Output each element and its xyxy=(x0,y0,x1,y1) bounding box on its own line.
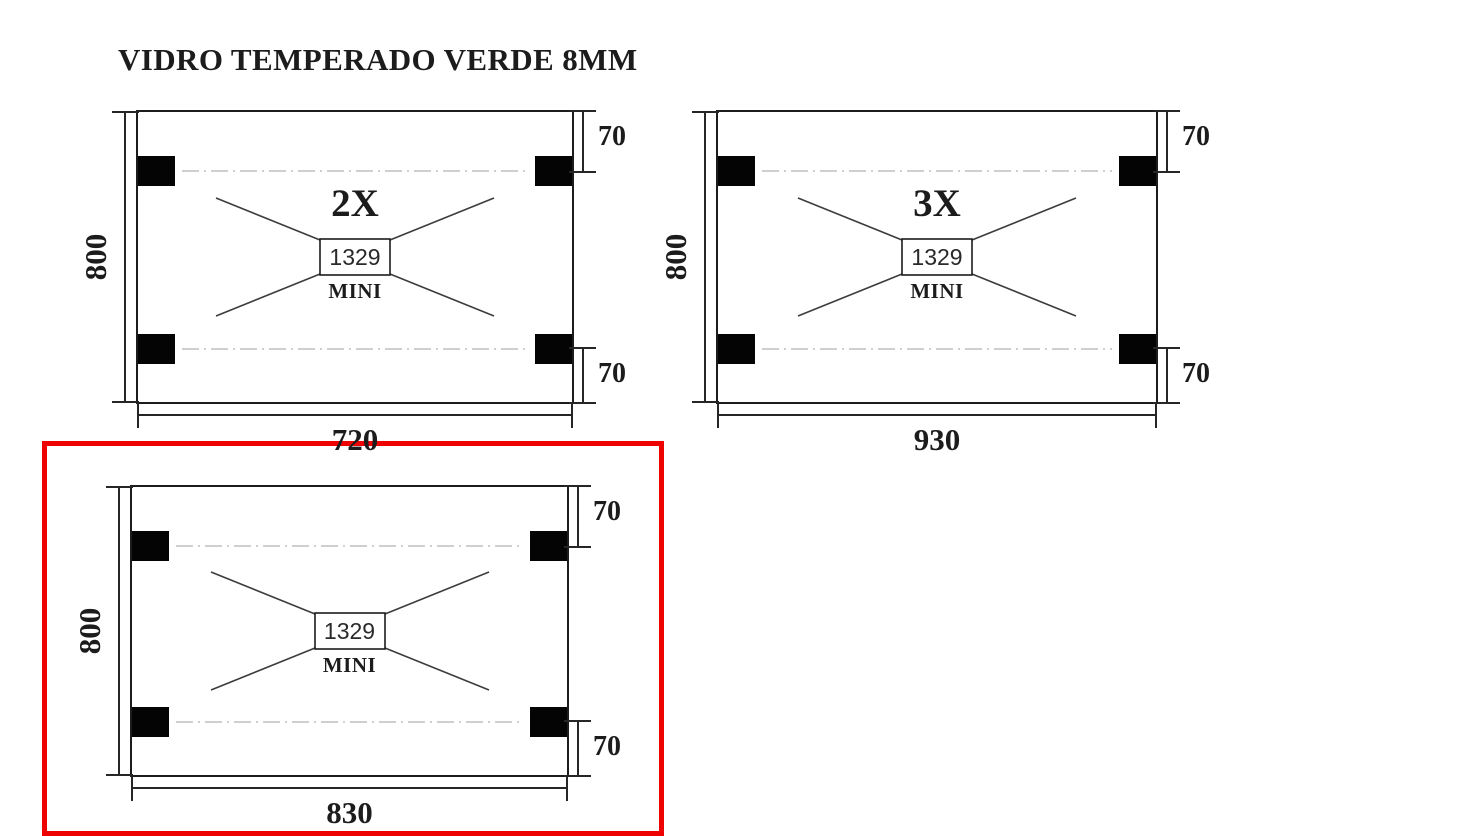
quantity-label: 2X xyxy=(200,184,510,223)
glass-panel-720x800: 2X 1329 MINI 800 720 70 70 xyxy=(136,110,574,404)
mounting-pad-icon xyxy=(1119,156,1156,186)
hole-offset-bottom-value: 70 xyxy=(1182,358,1210,390)
mounting-pad-icon xyxy=(132,531,169,561)
hole-offset-dimension-top: 70 xyxy=(577,486,579,547)
height-dimension-line xyxy=(118,486,120,776)
hole-offset-top-value: 70 xyxy=(598,121,626,153)
hole-offset-top-value: 70 xyxy=(1182,121,1210,153)
glass-panel-930x800: 3X 1329 MINI 800 930 70 70 xyxy=(716,110,1158,404)
hardware-series-label: MINI xyxy=(200,279,510,304)
mounting-pad-icon xyxy=(530,531,567,561)
height-dimension-line xyxy=(704,111,706,403)
center-hardware-mark: 2X 1329 MINI xyxy=(200,182,510,332)
center-hardware-mark: 3X 1329 MINI xyxy=(782,182,1092,332)
mounting-pad-icon xyxy=(1119,334,1156,364)
centerline-bottom xyxy=(762,348,1112,350)
hole-offset-top-value: 70 xyxy=(593,496,621,528)
centerline-bottom xyxy=(176,721,523,723)
height-dimension-line xyxy=(124,111,126,403)
mounting-pad-icon xyxy=(718,334,755,364)
hardware-model-label: 1329 xyxy=(320,239,390,275)
hole-offset-dimension-top: 70 xyxy=(582,111,584,172)
mounting-pad-icon xyxy=(535,334,572,364)
mounting-pad-icon xyxy=(530,707,567,737)
mounting-pad-icon xyxy=(535,156,572,186)
width-dimension-line xyxy=(131,787,568,789)
centerline-top xyxy=(182,170,528,172)
height-dimension-value: 800 xyxy=(658,234,694,281)
center-hardware-mark: 1329 MINI xyxy=(195,556,505,706)
mounting-pad-icon xyxy=(138,334,175,364)
hardware-series-label: MINI xyxy=(782,279,1092,304)
centerline-bottom xyxy=(182,348,528,350)
width-dimension-value: 830 xyxy=(132,795,567,831)
centerline-top xyxy=(176,545,523,547)
width-dimension-line xyxy=(137,414,573,416)
centerline-top xyxy=(762,170,1112,172)
hole-offset-dimension-bottom: 70 xyxy=(577,721,579,776)
mounting-pad-icon xyxy=(718,156,755,186)
mounting-pad-icon xyxy=(132,707,169,737)
hardware-series-label: MINI xyxy=(195,653,505,678)
height-dimension-value: 800 xyxy=(78,234,114,281)
width-dimension-value: 930 xyxy=(718,422,1156,458)
quantity-label: 3X xyxy=(782,184,1092,223)
width-dimension-line xyxy=(717,414,1157,416)
glass-panel-830x800: 1329 MINI 800 830 70 70 xyxy=(130,485,569,777)
height-dimension-value: 800 xyxy=(72,608,108,655)
hole-offset-dimension-top: 70 xyxy=(1166,111,1168,172)
mounting-pad-icon xyxy=(138,156,175,186)
hardware-model-label: 1329 xyxy=(315,613,385,649)
hole-offset-bottom-value: 70 xyxy=(593,731,621,763)
hole-offset-dimension-bottom: 70 xyxy=(582,348,584,403)
width-dimension-value: 720 xyxy=(138,422,572,458)
drawing-title: VIDRO TEMPERADO VERDE 8MM xyxy=(118,42,638,78)
hole-offset-dimension-bottom: 70 xyxy=(1166,348,1168,403)
hardware-model-label: 1329 xyxy=(902,239,972,275)
hole-offset-bottom-value: 70 xyxy=(598,358,626,390)
